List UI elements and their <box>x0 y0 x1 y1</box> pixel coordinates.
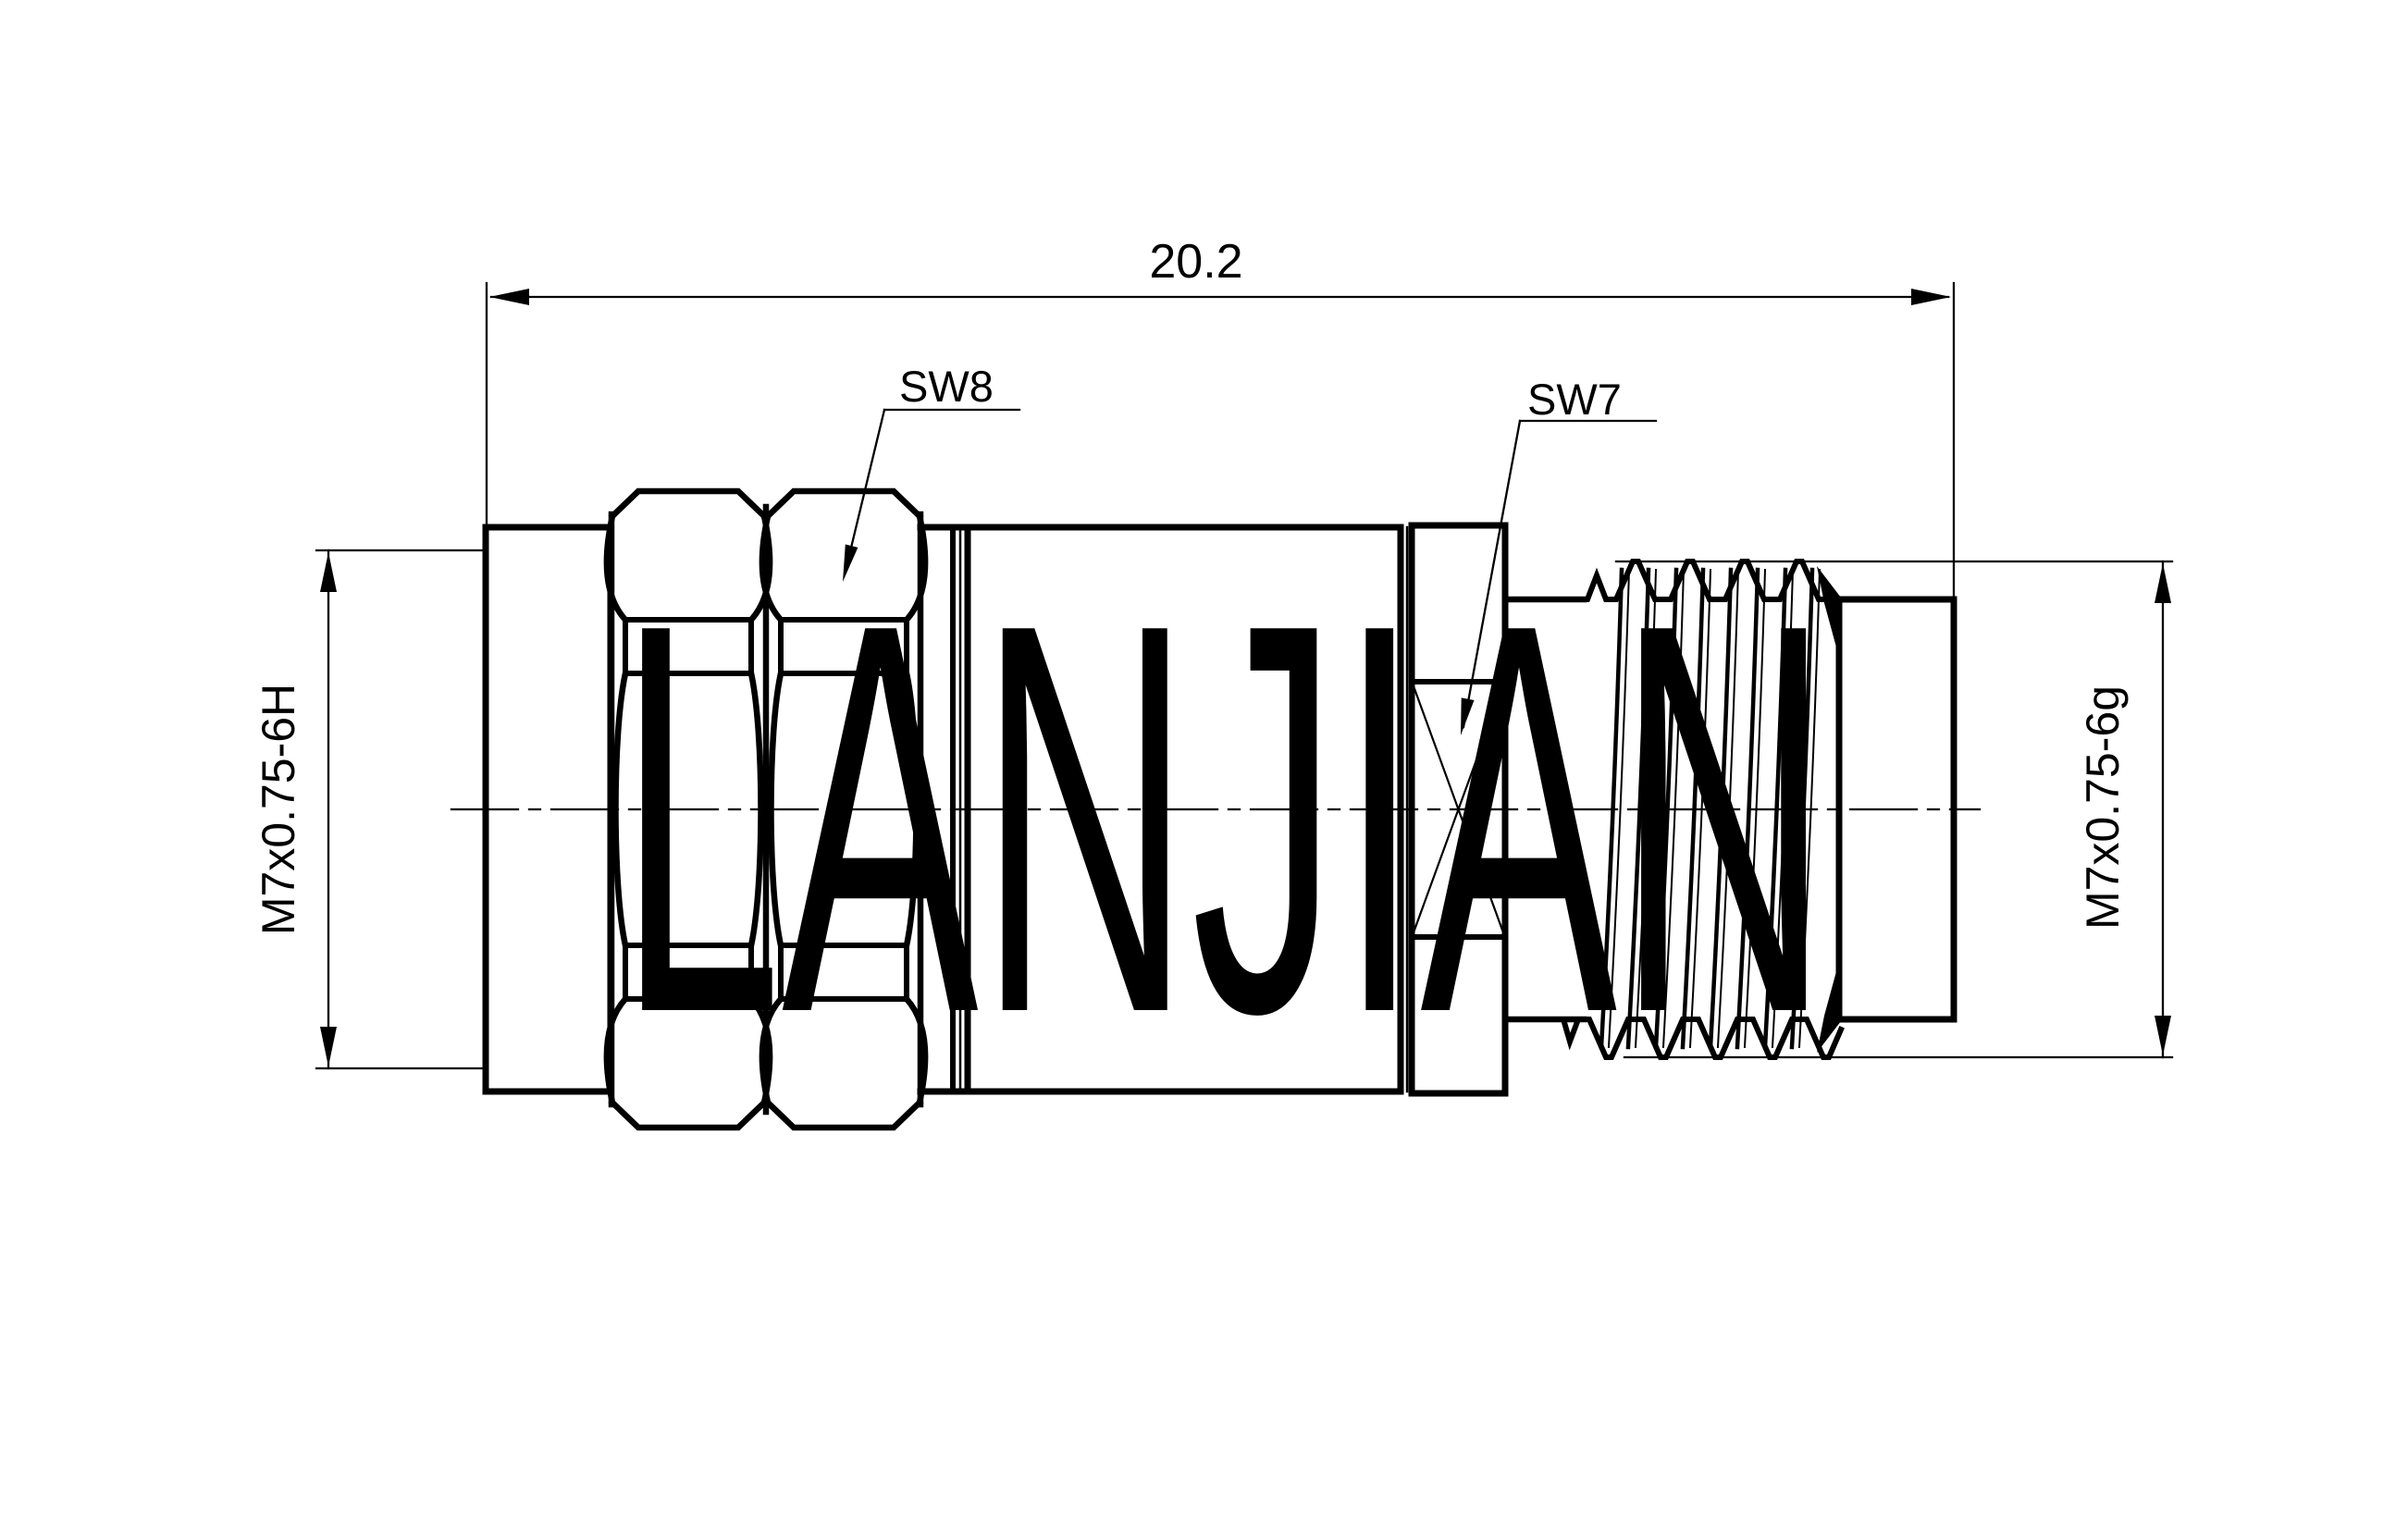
drawing-page: LANJIAN <box>0 0 2408 1529</box>
sw7-label: SW7 <box>1527 375 1622 424</box>
dim-arrow-right <box>1911 289 1951 305</box>
left-thread-label: M7x0.75-6H <box>253 684 304 935</box>
dim-arrow-up-left <box>320 552 337 592</box>
dim-arrow-down-left <box>320 1027 337 1067</box>
dim-arrow-down-right <box>2155 1016 2171 1055</box>
right-thread-label: M7x0.75-6g <box>2077 685 2129 930</box>
overall-length-label: 20.2 <box>1149 235 1242 289</box>
dim-arrow-left <box>489 289 529 305</box>
technical-drawing-canvas: LANJIAN <box>0 0 2408 1529</box>
dim-arrow-up-right <box>2155 563 2171 603</box>
sw8-label: SW8 <box>899 362 994 411</box>
